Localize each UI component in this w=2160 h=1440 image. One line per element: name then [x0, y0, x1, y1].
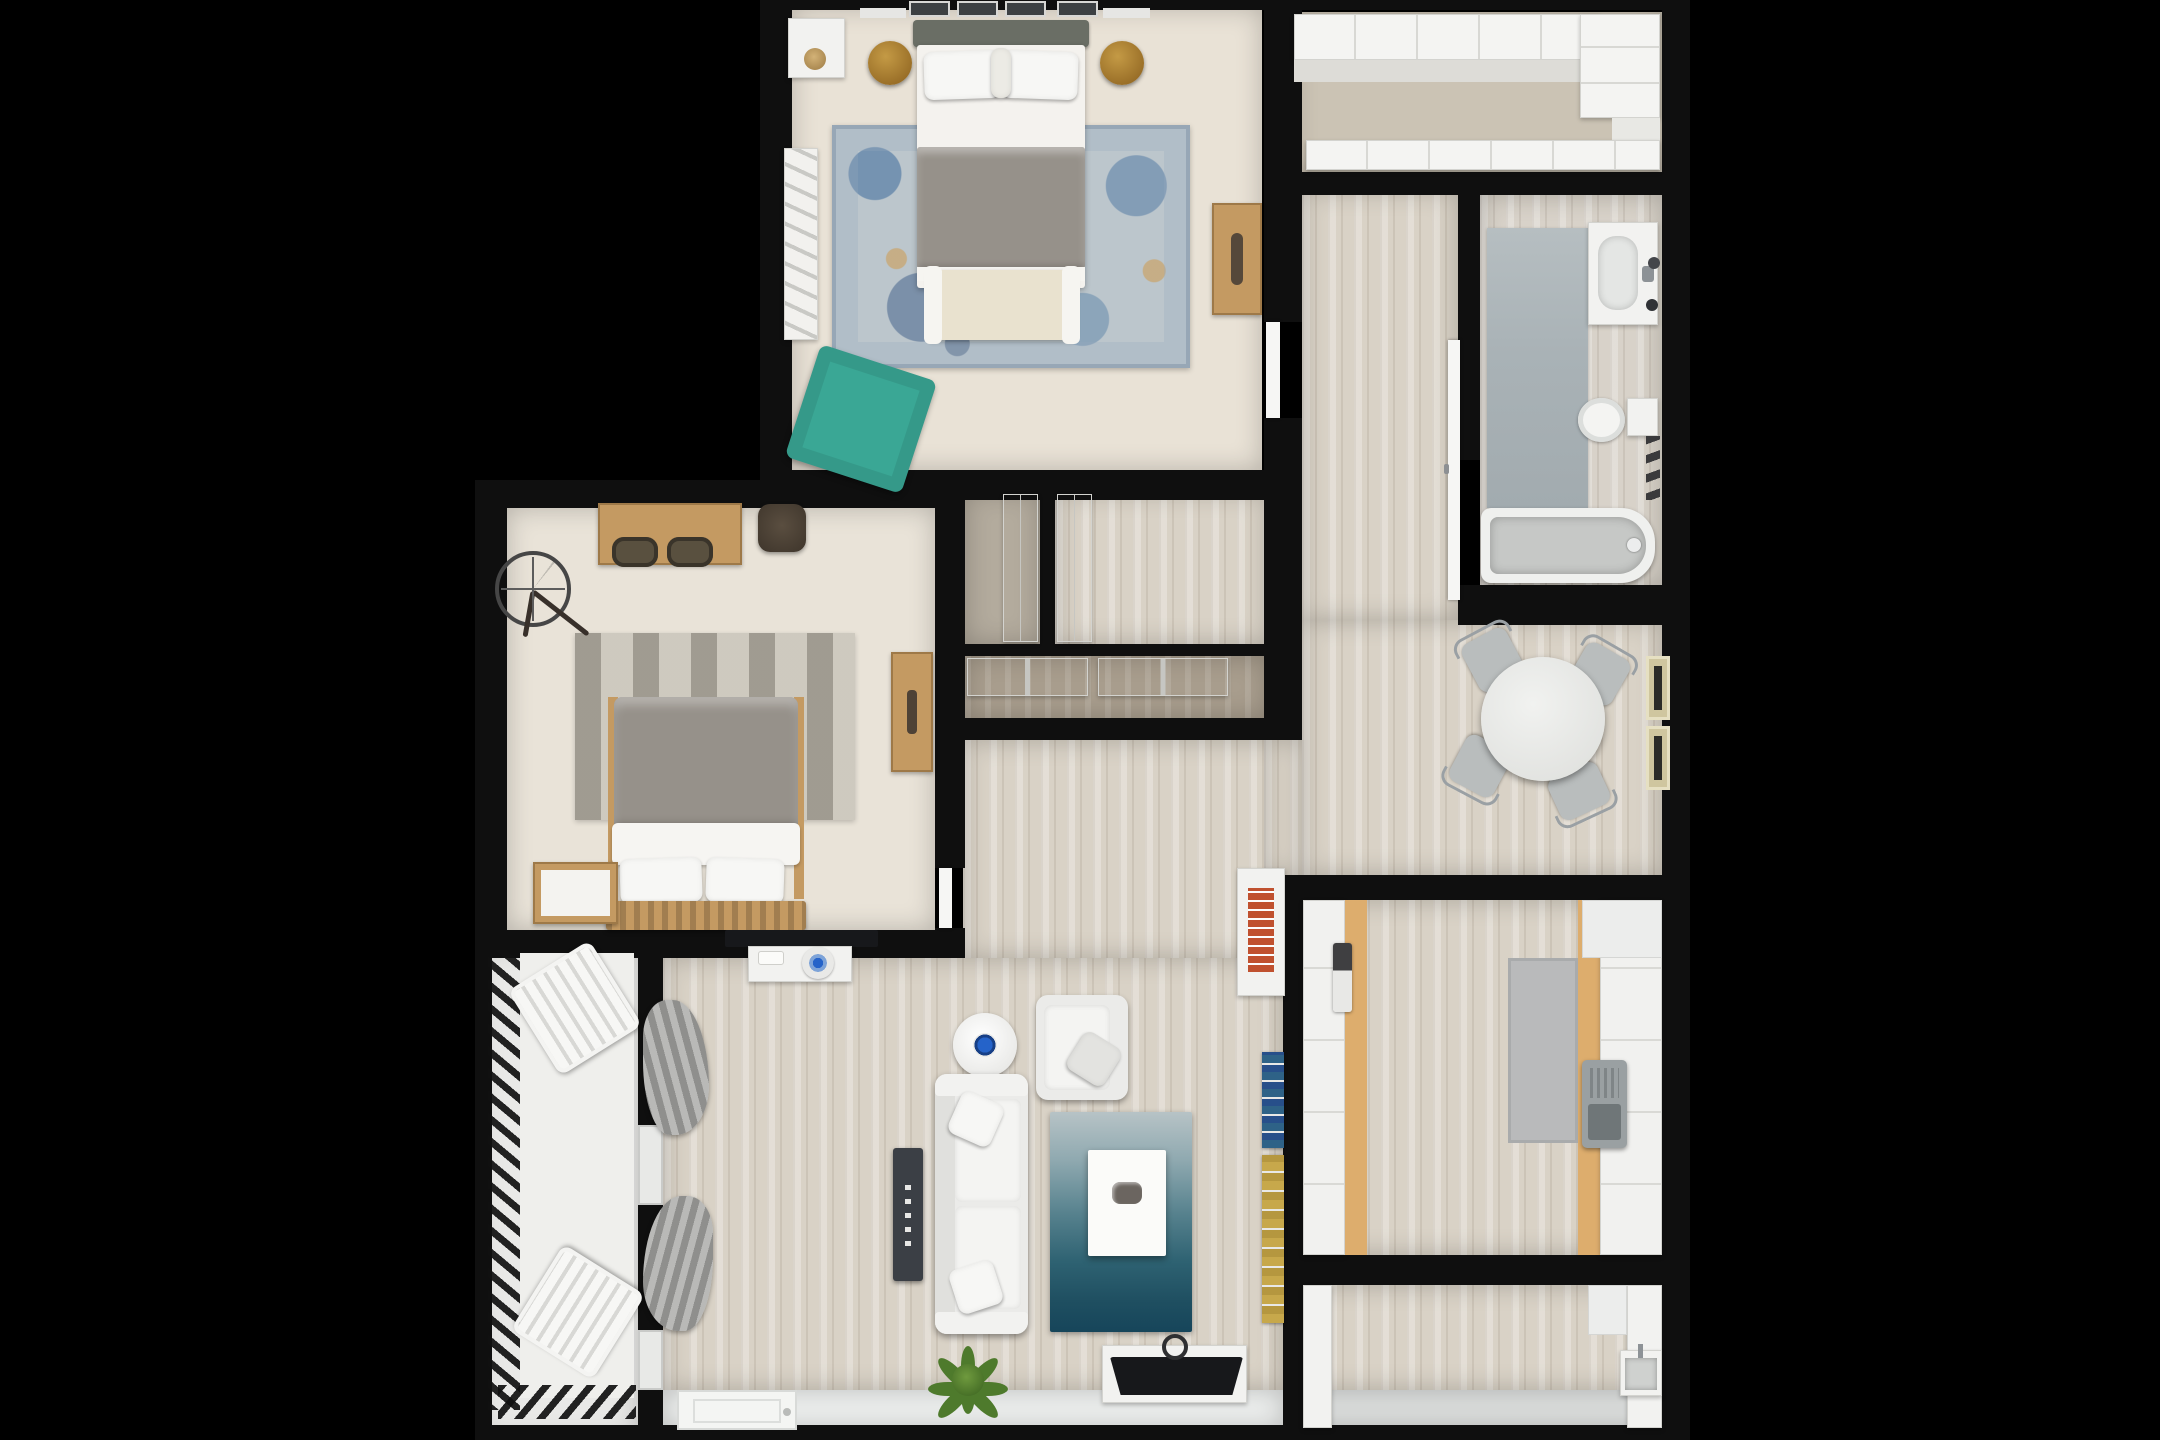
closet-c	[965, 656, 1268, 718]
armchair	[1036, 995, 1128, 1100]
closet-c-panel-1	[967, 658, 1088, 696]
bathroom-accessory-2	[1646, 299, 1658, 311]
decor-tray	[758, 951, 784, 965]
toilet-tank	[1627, 398, 1658, 436]
clock-spoke-h	[501, 588, 565, 590]
utility-sink-bowl	[1625, 1358, 1657, 1390]
bathtub-basin	[1490, 517, 1646, 574]
bedroom2-desk	[598, 503, 742, 565]
desk-chair-2	[667, 537, 713, 567]
bed2	[606, 693, 806, 933]
sink-basin	[1598, 236, 1638, 310]
curtain-upper	[643, 1000, 709, 1135]
closet-shelf-under	[1294, 60, 1600, 82]
bed1-duvet	[917, 147, 1085, 269]
toilet-bowl	[1578, 398, 1625, 442]
appliance-front	[1588, 1104, 1621, 1140]
bathroom-runner-mat	[1487, 228, 1588, 508]
sofa-arm-top	[935, 1074, 1028, 1096]
bench-arm-right	[1062, 266, 1080, 344]
countertop-appliance	[1582, 1060, 1627, 1148]
closet-cabinet-top	[1294, 14, 1600, 60]
bookshelf-red	[1237, 868, 1285, 996]
round-side-table	[953, 1013, 1017, 1077]
laundry-left-cabinet	[1303, 1285, 1332, 1428]
laundry-room	[1303, 1285, 1662, 1428]
bathtub	[1481, 508, 1655, 583]
sofa-arm-bottom	[935, 1312, 1028, 1334]
nightstand-drawer	[541, 870, 610, 916]
bedroom2-nightstand	[533, 862, 618, 924]
walk-in-closet	[1292, 12, 1662, 172]
nightstand-gold-right	[1100, 41, 1144, 85]
dining-wall-panel-1	[1646, 656, 1670, 720]
utility-sink-faucet	[1638, 1344, 1643, 1358]
balcony-railing-left	[488, 950, 520, 1410]
console-handle	[907, 690, 917, 734]
panel2-slot	[1654, 736, 1662, 780]
woven-pouf	[758, 504, 806, 552]
closet-b	[1055, 492, 1268, 644]
entry-door-handle	[783, 1408, 791, 1416]
tv-stand-dish	[1162, 1334, 1188, 1360]
shelf-basket	[804, 48, 826, 70]
bathroom	[1480, 195, 1662, 585]
curtain-lower	[643, 1196, 713, 1331]
entry-door-inner	[693, 1399, 781, 1423]
wall-tv-bar	[725, 930, 878, 947]
sofa-back	[935, 1074, 955, 1334]
closet-c-panel-2	[1098, 658, 1228, 696]
bedroom-1	[792, 8, 1262, 470]
panel1-slot	[1654, 666, 1662, 710]
bedroom1-dresser	[784, 148, 818, 340]
contents-layer	[0, 0, 2160, 1440]
sofa	[935, 1074, 1028, 1334]
bed1-pillow-right	[1001, 50, 1079, 101]
kitchen	[1303, 900, 1662, 1255]
bed1-pillow-left	[923, 50, 1001, 101]
bed2-pillow-left	[619, 857, 703, 905]
closet-a-wardrobe	[1003, 494, 1038, 642]
bed1-accent-pillow	[991, 48, 1011, 98]
closet-a	[965, 492, 1040, 644]
entry-door-mat	[677, 1390, 797, 1430]
wall-clock	[495, 551, 571, 627]
laundry-upper-cabinet	[1588, 1285, 1627, 1335]
bed1-headboard	[913, 20, 1089, 47]
bench-arm-left	[924, 266, 942, 344]
floor-plan-stage	[0, 0, 2160, 1440]
dining-area	[1302, 620, 1662, 875]
book-ledge-blue	[1262, 1052, 1284, 1148]
balcony	[478, 945, 638, 1440]
bed1-foot-bench	[928, 270, 1076, 340]
bed2-pillow-right	[705, 857, 785, 905]
bedroom1-wall-shelf	[788, 18, 845, 78]
nightstand-gold-left	[868, 41, 912, 85]
book-ledge-yellow	[1262, 1155, 1284, 1323]
bed1	[917, 45, 1085, 288]
dining-table	[1481, 657, 1605, 781]
towel-hooks	[1646, 436, 1660, 500]
dining-wall-panel-2	[1646, 726, 1670, 790]
bathtub-faucet	[1627, 538, 1641, 552]
closet-cabinet-step	[1612, 118, 1660, 142]
media-console-buttons	[905, 1184, 911, 1246]
desk-chair-1	[612, 537, 658, 567]
media-console	[893, 1148, 923, 1281]
television	[1110, 1357, 1243, 1395]
decor-plate	[802, 947, 834, 979]
bed2-duvet	[614, 697, 798, 827]
living-room	[663, 958, 1283, 1428]
closet-cabinet-right	[1580, 14, 1660, 118]
kitchen-top-right-counter	[1582, 900, 1662, 958]
paper-towel-holder	[1333, 943, 1352, 1012]
potted-plant	[934, 1346, 1002, 1414]
books-red	[1248, 888, 1274, 972]
utility-sink	[1620, 1350, 1662, 1396]
side-table-bowl	[973, 1033, 997, 1057]
storage-bench-handle	[1231, 233, 1243, 285]
bathroom-accessory-1	[1648, 257, 1660, 269]
appliance-vents	[1590, 1068, 1619, 1098]
kitchen-gray-mat	[1508, 958, 1578, 1143]
closet-b-wardrobe	[1057, 494, 1092, 642]
closet-cabinet-bottom	[1306, 140, 1660, 170]
bedroom2-console	[891, 652, 933, 772]
balcony-railing-bottom	[498, 1385, 636, 1419]
coffee-table	[1088, 1150, 1166, 1256]
coffee-table-object	[1112, 1182, 1142, 1204]
bed2-headboard	[606, 901, 806, 930]
plant-center	[952, 1364, 984, 1396]
clock-hand-long	[531, 590, 589, 637]
bedroom-2	[507, 508, 935, 930]
bedroom1-storage-bench	[1212, 203, 1262, 315]
decor-plate-center	[809, 954, 827, 972]
